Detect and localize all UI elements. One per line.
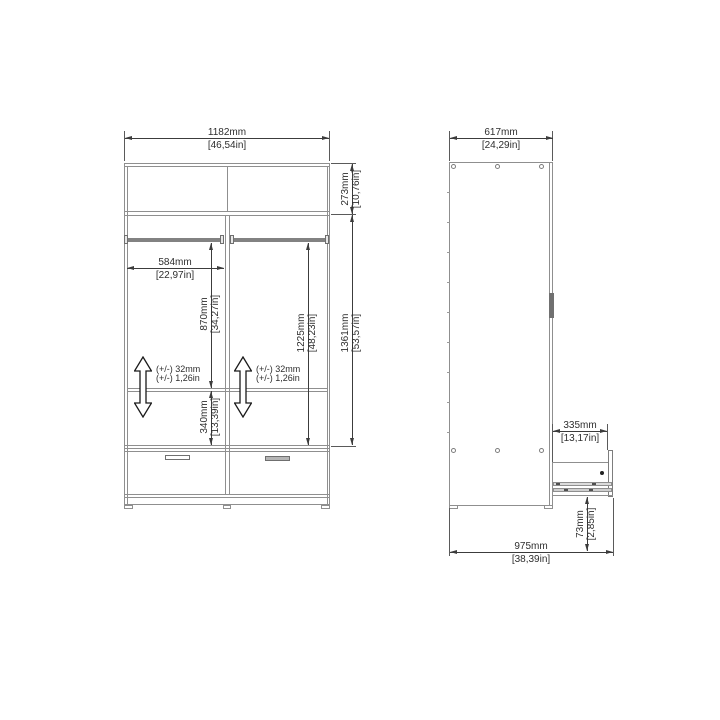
arrowhead-down-icon	[306, 438, 310, 445]
right-wall-inner-line	[327, 166, 328, 505]
arrowhead-left-icon	[127, 266, 134, 270]
drill-hole	[539, 164, 544, 169]
rod-bracket	[230, 235, 234, 244]
arrowhead-left-icon	[553, 429, 560, 433]
dim-right-hanging-mm: 1225mm	[297, 314, 307, 353]
dim-drawer-extension-mm: 335mm	[563, 420, 596, 431]
rail-stop	[564, 489, 568, 491]
dim-compartment-width-inch: [22,97in]	[156, 270, 194, 281]
pin-hole-tick	[447, 282, 450, 283]
dim-open-depth-mm: 975mm	[514, 541, 547, 552]
pin-hole-tick	[447, 192, 450, 193]
drill-hole	[451, 164, 456, 169]
left-wall-inner-line	[127, 166, 128, 505]
arrowhead-right-icon	[606, 550, 613, 554]
arrowhead-up-icon	[585, 497, 589, 504]
front-edge-inner-line	[549, 162, 550, 506]
pin-hole-tick	[447, 372, 450, 373]
extension-line	[607, 424, 608, 450]
dim-bottom-section-mm: 340mm	[200, 400, 210, 433]
arrowhead-left-icon	[450, 550, 457, 554]
hanging-rod-left	[128, 238, 222, 242]
dim-depth-mm: 617mm	[484, 127, 517, 138]
center-divider	[225, 215, 226, 494]
dimension-line	[450, 552, 613, 553]
adjust-arrow-right-icon	[234, 356, 252, 418]
pin-hole-tick	[447, 312, 450, 313]
arrowhead-down-icon	[209, 438, 213, 445]
arrowhead-down-icon	[209, 381, 213, 388]
pin-hole-tick	[447, 342, 450, 343]
top-shelf-line	[124, 211, 330, 212]
interior-bottom-line-lower	[124, 448, 330, 449]
rail-stop	[589, 489, 593, 491]
drawer-top-line	[124, 451, 330, 452]
interior-bottom-line	[124, 445, 330, 446]
door-handle-side	[549, 293, 554, 318]
dim-open-depth-inch: [38,39in]	[512, 554, 550, 565]
foot	[449, 505, 458, 509]
drill-hole	[495, 448, 500, 453]
drawer-slide-rail	[553, 488, 612, 492]
dim-overall-width-inch: [46,54in]	[208, 140, 246, 151]
rail-stop	[556, 483, 560, 485]
dimension-line	[450, 138, 553, 139]
rod-bracket	[124, 235, 128, 244]
drawer-side-top-line	[553, 462, 608, 463]
arrowhead-left-icon	[450, 136, 457, 140]
arrowhead-left-icon	[125, 136, 132, 140]
shelf-tolerance-left-inch: (+/-) 1,26in	[156, 374, 200, 384]
dim-right-hanging-inch: [48,23in]	[308, 314, 318, 352]
arrowhead-up-icon	[306, 243, 310, 250]
foot	[124, 505, 133, 509]
drawer-slide-rail	[553, 482, 612, 486]
foot	[223, 505, 231, 509]
dimension-line	[125, 138, 329, 139]
dim-top-section-inch: [10,76in]	[352, 170, 362, 208]
drill-hole	[451, 448, 456, 453]
extension-line	[449, 508, 450, 556]
extension-line	[331, 446, 356, 447]
rod-bracket	[220, 235, 224, 244]
drawer-screw-dot	[600, 471, 604, 475]
dim-left-hanging-inch: [34,27in]	[211, 295, 221, 333]
dim-body-height-mm: 1361mm	[341, 314, 351, 353]
pin-hole-tick	[447, 252, 450, 253]
dim-drawer-clearance-mm: 73mm	[576, 510, 586, 538]
pin-hole-tick	[447, 432, 450, 433]
drawer-handle-right	[265, 456, 290, 461]
extension-line	[613, 498, 614, 556]
dim-drawer-extension-inch: [13,17in]	[561, 433, 599, 444]
top-shelf-line-lower	[124, 215, 330, 216]
arrowhead-right-icon	[546, 136, 553, 140]
dimension-line	[553, 431, 607, 432]
adjustable-shelf-line-lower	[127, 391, 327, 392]
dim-drawer-clearance-inch: [2,85in]	[587, 508, 597, 541]
arrowhead-up-icon	[350, 215, 354, 222]
center-divider-inner	[229, 215, 230, 494]
pin-hole-tick	[447, 222, 450, 223]
foot	[544, 505, 553, 509]
dim-top-section-mm: 273mm	[341, 172, 351, 205]
pin-hole-tick	[447, 402, 450, 403]
top-section-divider	[227, 166, 228, 211]
arrowhead-right-icon	[600, 429, 607, 433]
arrowhead-down-icon	[585, 544, 589, 551]
drawer-slide-bottom-line	[553, 495, 613, 496]
arrowhead-right-icon	[322, 136, 329, 140]
dim-left-hanging-mm: 870mm	[200, 297, 210, 330]
arrowhead-up-icon	[209, 243, 213, 250]
drawer-bottom-line	[124, 494, 330, 495]
plinth-line	[124, 497, 330, 498]
dim-compartment-width-mm: 584mm	[158, 257, 191, 268]
adjustable-shelf-line	[127, 388, 327, 389]
adjust-arrow-left-icon	[134, 356, 152, 418]
dim-bottom-section-inch: [13,39in]	[211, 398, 221, 436]
technical-drawing-canvas: 1182mm [46,54in] 273mm [10,76in] 1361mm …	[0, 0, 720, 720]
hanging-rod-right	[232, 238, 325, 242]
dim-overall-width-mm: 1182mm	[208, 127, 246, 138]
shelf-tolerance-right-inch: (+/-) 1,26in	[256, 374, 300, 384]
arrowhead-right-icon	[217, 266, 224, 270]
rod-bracket	[325, 235, 329, 244]
side-panel-outline	[449, 162, 553, 506]
arrowhead-down-icon	[350, 438, 354, 445]
foot	[321, 505, 330, 509]
dim-depth-inch: [24,29in]	[482, 140, 520, 151]
drill-hole	[495, 164, 500, 169]
drawer-handle-left	[165, 455, 190, 460]
extension-line	[329, 131, 330, 161]
rail-stop	[592, 483, 596, 485]
drill-hole	[539, 448, 544, 453]
dim-body-height-inch: [53,57in]	[352, 314, 362, 352]
dimension-line	[127, 268, 224, 269]
